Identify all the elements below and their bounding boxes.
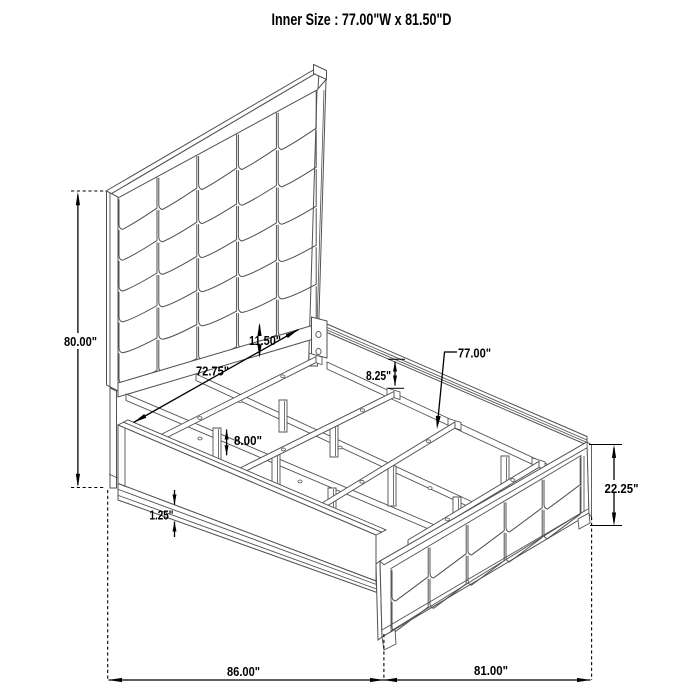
svg-text:81.00": 81.00" [474, 663, 508, 678]
svg-text:72.75": 72.75" [196, 364, 229, 379]
svg-text:8.00": 8.00" [234, 433, 262, 448]
svg-text:22.25": 22.25" [605, 481, 639, 496]
svg-text:86.00": 86.00" [227, 664, 260, 679]
svg-text:80.00": 80.00" [64, 334, 97, 349]
svg-text:1.25": 1.25" [150, 508, 174, 523]
svg-text:11.50": 11.50" [249, 333, 281, 348]
svg-text:8.25": 8.25" [366, 368, 391, 383]
svg-text:77.00": 77.00" [458, 346, 491, 361]
svg-text:Inner Size : 77.00"W x 81.50"D: Inner Size : 77.00"W x 81.50"D [272, 10, 452, 29]
